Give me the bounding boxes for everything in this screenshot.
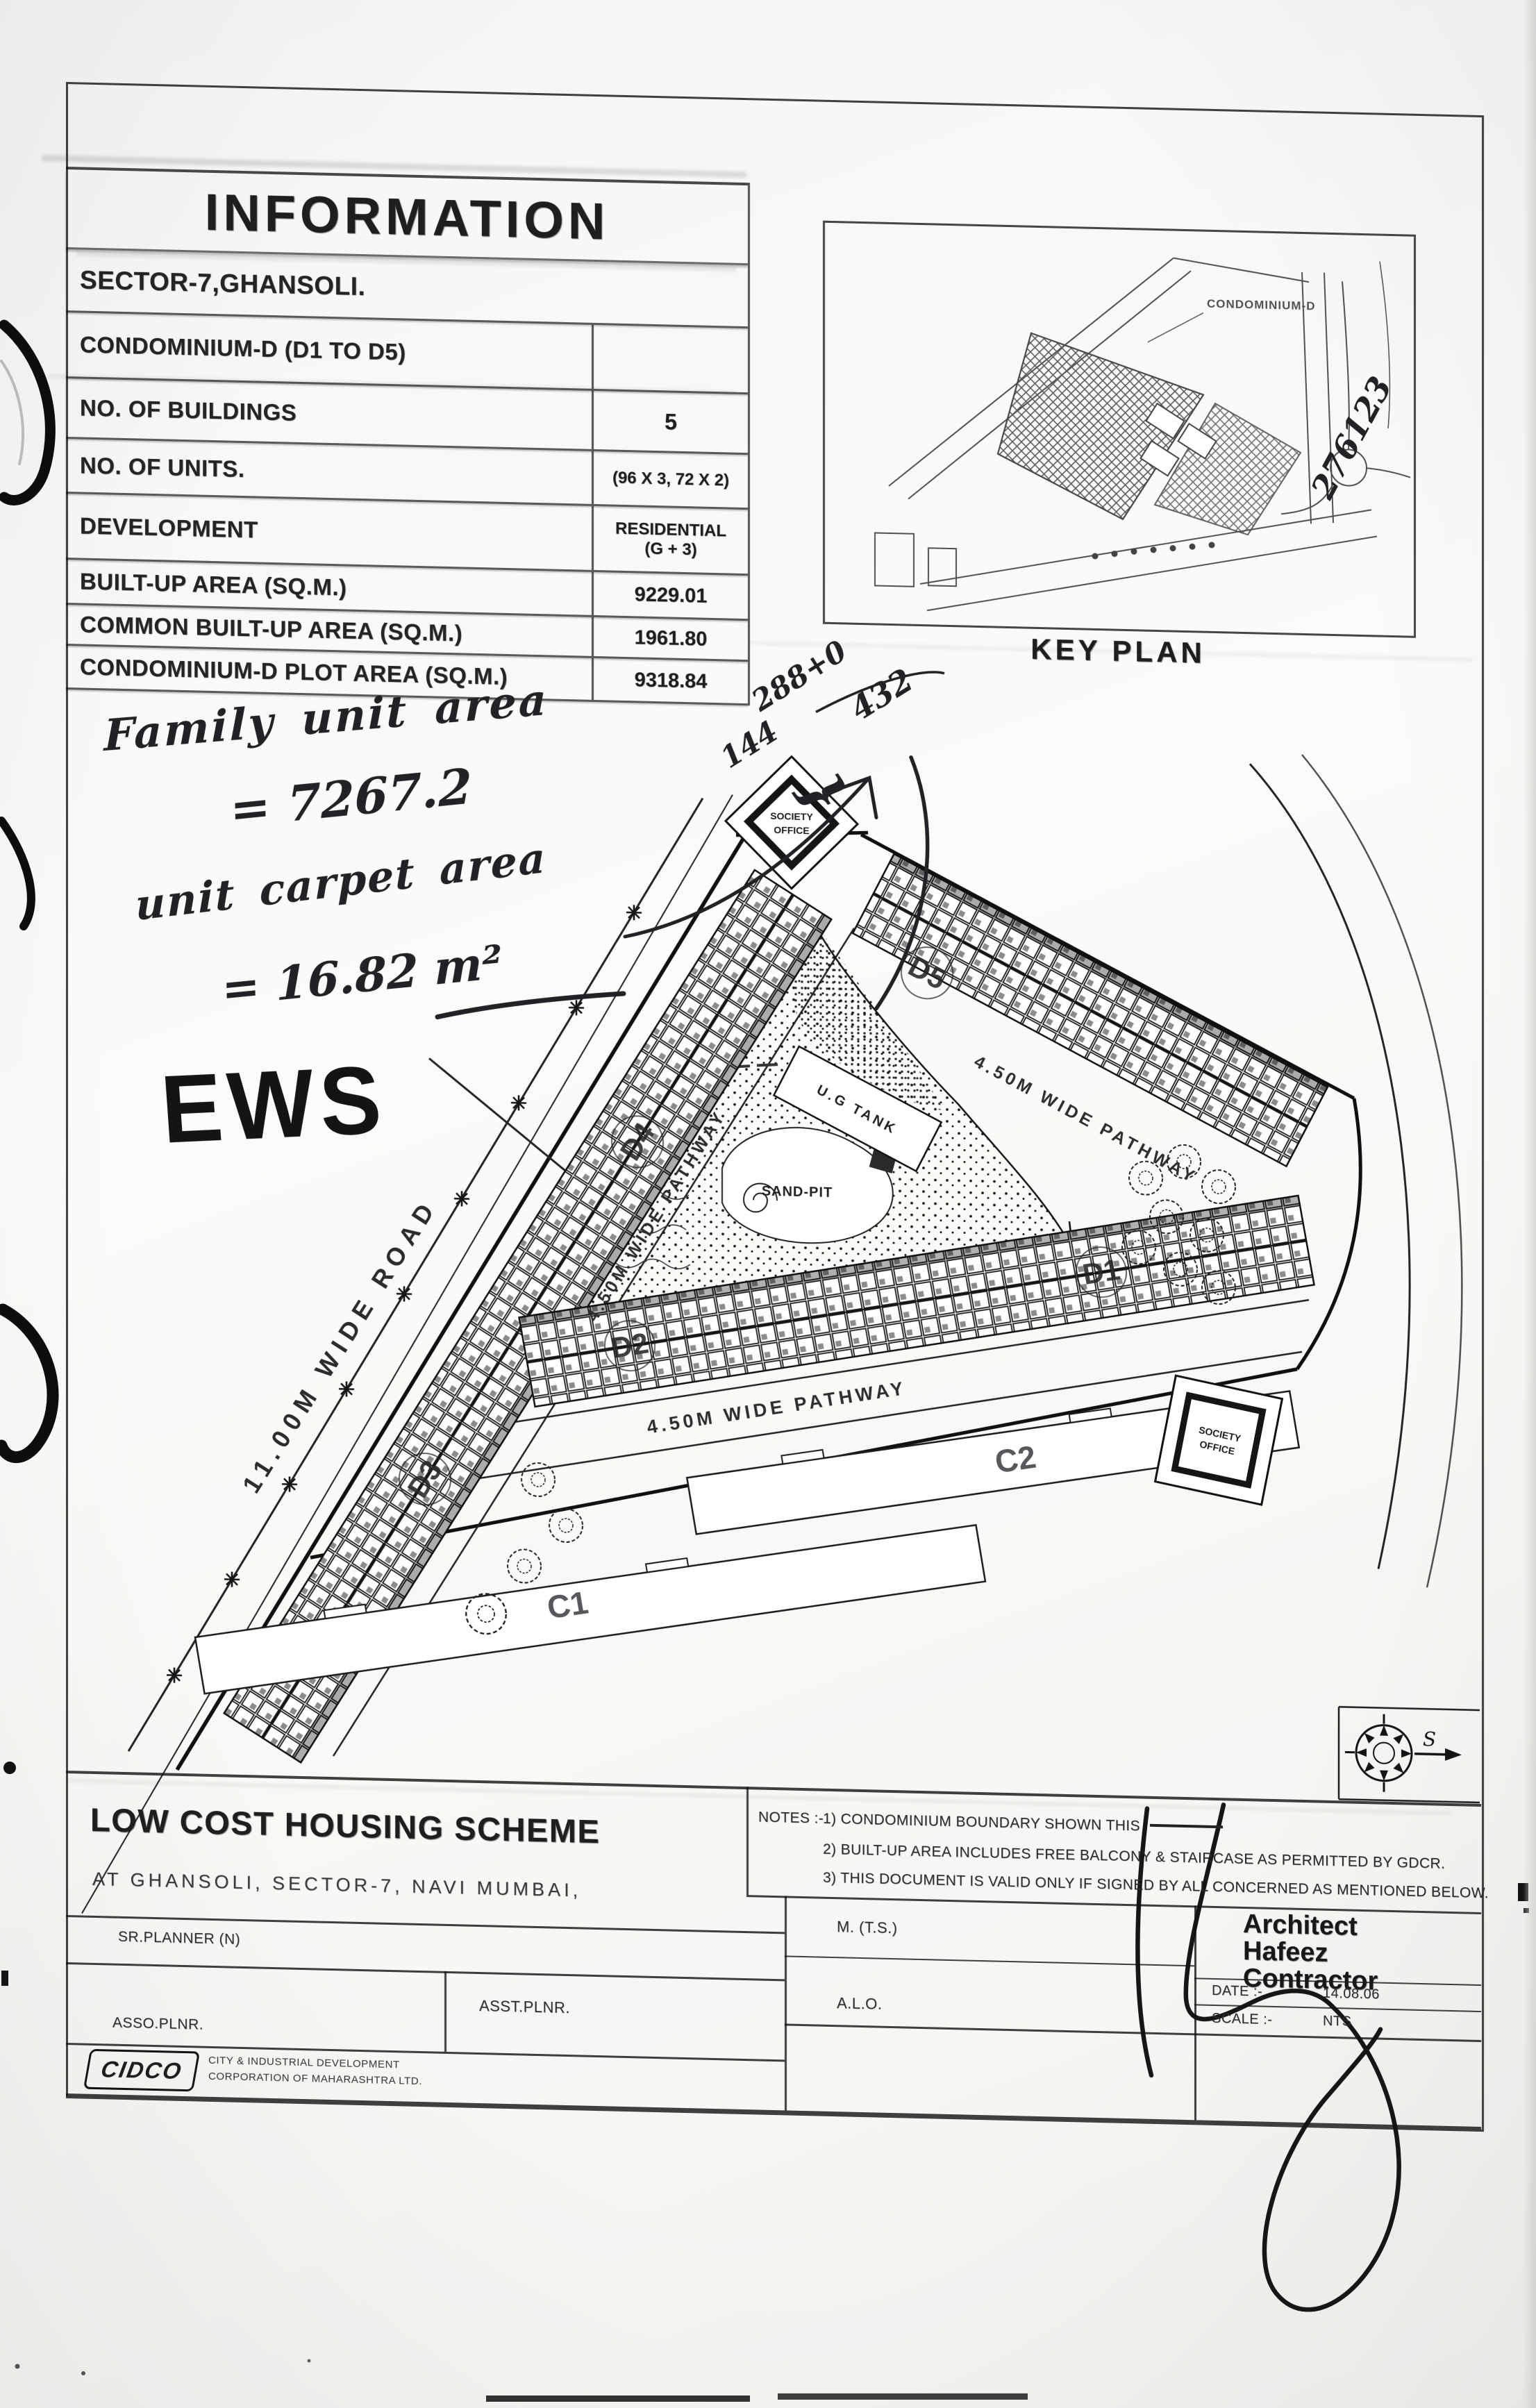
page-edge-shadow <box>1524 0 1536 2408</box>
date-label: DATE :- <box>1212 1983 1262 2000</box>
society-office-label-line2: OFFICE <box>774 824 809 836</box>
asso-plnr-label: ASSO.PLNR. <box>112 2015 203 2034</box>
compass-rose-icon: S <box>1345 1713 1462 1794</box>
architect-name: Architect Hafeez Contractor <box>1243 1911 1378 1995</box>
alo-label: A.L.O. <box>837 1994 882 2014</box>
notes-heading: NOTES :- <box>758 1809 824 1827</box>
sand-pit-label: SAND-PIT <box>762 1184 833 1201</box>
scale-label: SCALE :- <box>1212 2011 1272 2028</box>
scale-value: NTS <box>1323 2014 1352 2030</box>
svg-text:D2: D2 <box>608 1326 651 1364</box>
building-label-c2: C2 <box>992 1439 1039 1480</box>
date-value: 14.08.06 <box>1323 1986 1380 2003</box>
boundary-line-sample <box>1150 1824 1223 1828</box>
titleblock-line <box>444 1971 446 2052</box>
corporation-name: CITY & INDUSTRIAL DEVELOPMENT CORPORATIO… <box>208 2053 422 2089</box>
titleblock-line <box>785 1896 787 2110</box>
svg-text:D1: D1 <box>1080 1253 1122 1291</box>
condominium-boundary-right <box>1297 1097 1360 1371</box>
pathway-label-bottom: 4.50M WIDE PATHWAY <box>645 1378 908 1438</box>
svg-text:288+0: 288+0 <box>745 634 853 719</box>
compass-south-label: S <box>1423 1728 1436 1750</box>
titleblock-line <box>1194 1905 1196 2120</box>
asst-plnr-label: ASST.PLNR. <box>479 1997 570 2017</box>
sr-planner-label: SR.PLANNER (N) <box>118 1929 240 1948</box>
drawing-sheet: INFORMATION SECTOR-7,GHANSOLI. CONDOMINI… <box>0 0 1536 2408</box>
corporation-line1: CITY & INDUSTRIAL DEVELOPMENT <box>208 2055 400 2071</box>
scanned-drawing-page: INFORMATION SECTOR-7,GHANSOLI. CONDOMINI… <box>0 0 1536 2408</box>
titleblock-line <box>746 1787 749 1895</box>
m-ts-label: M. (T.S.) <box>837 1918 898 1937</box>
building-label-c1: C1 <box>544 1584 591 1625</box>
society-office-bottom: SOCIETY OFFICE <box>1155 1376 1283 1505</box>
svg-text:144: 144 <box>715 714 784 775</box>
cidco-logo: CIDCO <box>83 2049 200 2091</box>
corporation-line2: CORPORATION OF MAHARASHTRA LTD. <box>208 2070 422 2087</box>
